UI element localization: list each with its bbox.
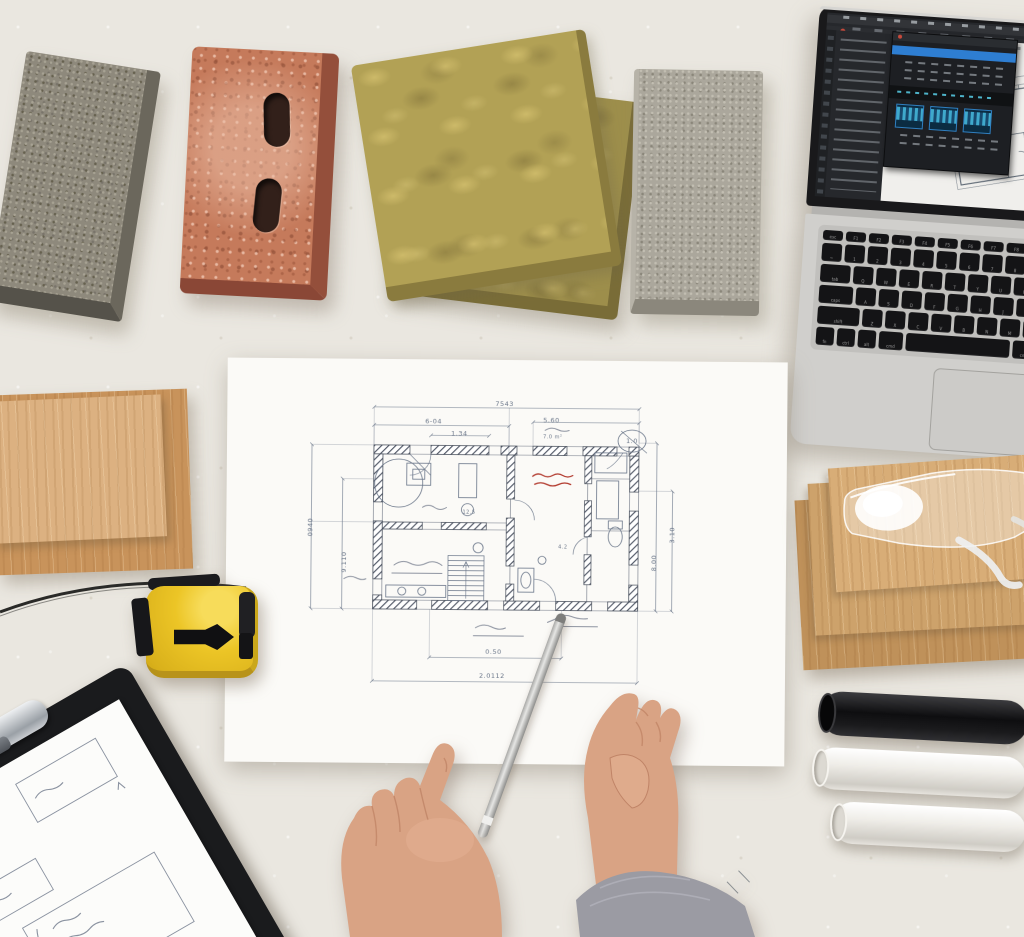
keyboard-key: K [1016, 298, 1024, 317]
keyboard-key: H [970, 295, 991, 314]
keyboard-key: F5 [937, 238, 958, 249]
blueprint-dimension-label: 0940 [306, 518, 314, 537]
tape-exit-slot [239, 633, 253, 659]
insulation-slab-top [351, 29, 622, 302]
keyboard-key: F2 [869, 233, 890, 244]
keyboard-key: M [999, 318, 1020, 337]
keyboard-key: A [855, 287, 876, 306]
tape-measure-lock-button [174, 624, 234, 650]
laptop: escF1F2F3F4F5F6F7F8F9F10F11F12~123456789… [789, 6, 1024, 467]
keyboard-key: 7 [982, 254, 1003, 273]
thumbnail [929, 106, 959, 132]
palette-row [904, 77, 1006, 86]
blueprint-dimension-label: 6-04 [425, 417, 442, 425]
pipe-white-1 [813, 746, 1024, 799]
keyboard-key: G [947, 294, 968, 313]
keyboard-key: R [922, 271, 943, 290]
palette-row [905, 69, 1007, 78]
keyboard-key: F3 [892, 235, 913, 246]
palette-selected-row [892, 45, 1016, 63]
blueprint-dimension-label: 1.34 [451, 430, 468, 438]
keyboard-key: I [1013, 277, 1024, 296]
cad-floating-palette [883, 31, 1018, 175]
laptop-deck: escF1F2F3F4F5F6F7F8F9F10F11F12~123456789… [789, 213, 1024, 466]
blueprint-dimension-label: 5.60 [543, 416, 560, 424]
right-hand [540, 638, 810, 937]
keyboard-key: C [908, 312, 929, 331]
keyboard-key: cmd [878, 331, 903, 351]
keyboard: escF1F2F3F4F5F6F7F8F9F10F11F12~123456789… [810, 224, 1024, 370]
brick-hole [252, 177, 284, 233]
keyboard-key: fn [815, 327, 834, 346]
concrete-block-light [630, 69, 763, 316]
palette-row [905, 61, 1007, 70]
blueprint-dimension-label: 8.00 [650, 555, 658, 572]
blueprint-dimension-label: 2.0112 [479, 672, 505, 680]
keyboard-key: W [876, 268, 897, 287]
keyboard-key: ~ [821, 243, 842, 262]
keyboard-key: J [993, 297, 1014, 316]
keyboard-key: V [931, 314, 952, 333]
sweater-sleeve [576, 871, 755, 937]
pipe-black [819, 691, 1024, 746]
keyboard-key: F [924, 292, 945, 311]
keyboard-key: E [899, 269, 920, 288]
keyboard-key: B [954, 315, 975, 334]
trackpad [928, 368, 1024, 460]
palette-red-icon [898, 35, 902, 39]
keyboard-key [905, 333, 1010, 358]
desk-surface: escF1F2F3F4F5F6F7F8F9F10F11F12~123456789… [0, 0, 1024, 937]
keyboard-key: F6 [960, 239, 981, 250]
pipe-white-2 [831, 801, 1024, 853]
red-brick [180, 46, 340, 300]
palette-row [900, 142, 1002, 151]
blueprint-dimension-label: 1.0 [626, 437, 638, 445]
keyboard-key: caps [818, 285, 853, 305]
safety-glasses [835, 457, 1024, 600]
keyboard-key: ctrl [836, 328, 855, 347]
keyboard-key: Q [853, 266, 874, 285]
keyboard-key: Z [862, 309, 883, 328]
brick-hole [264, 92, 291, 146]
keyboard-key: 6 [959, 252, 980, 271]
laptop-lid [806, 6, 1024, 229]
tape-measure-body [146, 586, 258, 678]
thumbnail [963, 108, 993, 134]
keyboard-key: T [944, 272, 965, 291]
blueprint-dimension-label: 4.2 [558, 544, 568, 550]
blueprint-dimension-label: 12.5 [462, 510, 475, 516]
thumbnail [895, 104, 925, 130]
laptop-screen [815, 13, 1024, 219]
keyboard-key: F8 [1006, 243, 1024, 254]
keyboard-key: Y [967, 274, 988, 293]
tape-measure [136, 578, 264, 686]
keyboard-key: 2 [867, 246, 888, 265]
blueprint-dimension-label: 7543 [495, 400, 514, 408]
keyboard-key: F1 [846, 231, 867, 242]
left-hand [320, 700, 550, 937]
keyboard-key: cmd [1012, 340, 1024, 360]
layer-list [830, 39, 886, 193]
keyboard-key: alt [857, 329, 876, 348]
keyboard-key: U [990, 276, 1011, 295]
keyboard-key: D [901, 290, 922, 309]
keyboard-key: shift [817, 306, 860, 327]
palette-row [900, 134, 1002, 143]
keyboard-key: 4 [913, 249, 934, 268]
keyboard-key: tab [820, 264, 851, 284]
keyboard-key: 5 [936, 251, 957, 270]
keyboard-key: F4 [914, 236, 935, 247]
blueprint-dimension-label: 3.10 [668, 527, 676, 544]
keyboard-key: F7 [983, 241, 1004, 252]
keyboard-key: S [878, 289, 899, 308]
blueprint-dimension-label: 9.110 [340, 551, 348, 572]
keyboard-key: esc [823, 230, 844, 241]
wood-plank-top [0, 394, 167, 543]
blueprint-dimension-label: 7.0 m² [543, 434, 562, 440]
keyboard-key: N [976, 317, 997, 336]
palette-thumbnails [895, 104, 1012, 136]
keyboard-key: 8 [1005, 256, 1024, 275]
wood-board-stack [793, 456, 1024, 674]
tape-measure-side [239, 592, 255, 638]
keyboard-key: 3 [890, 248, 911, 267]
blueprint-dimension-label: 0.50 [485, 648, 502, 656]
keyboard-key: 1 [844, 244, 865, 263]
concrete-block-dark [0, 51, 161, 322]
keyboard-key: X [885, 310, 906, 329]
